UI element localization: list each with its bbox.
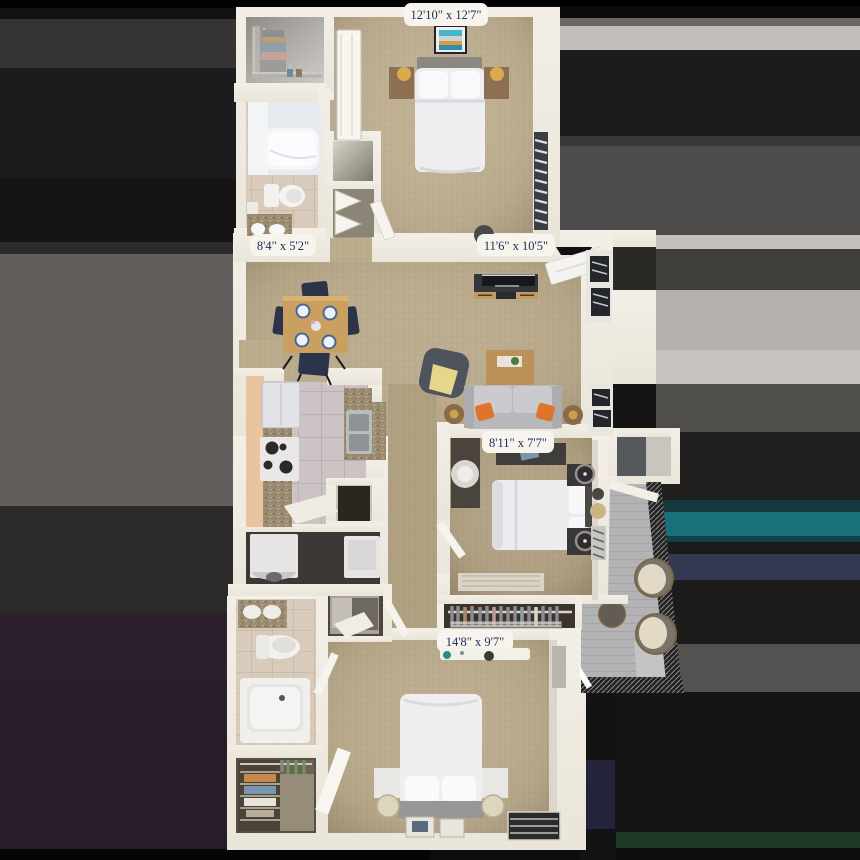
- svg-text:8'11" x 7'7": 8'11" x 7'7": [489, 436, 547, 450]
- svg-text:8'4" x 5'2": 8'4" x 5'2": [257, 239, 309, 253]
- svg-text:12'10" x 12'7": 12'10" x 12'7": [411, 8, 482, 22]
- svg-text:11'6" x 10'5": 11'6" x 10'5": [484, 239, 548, 253]
- svg-text:14'8" x 9'7": 14'8" x 9'7": [446, 635, 504, 649]
